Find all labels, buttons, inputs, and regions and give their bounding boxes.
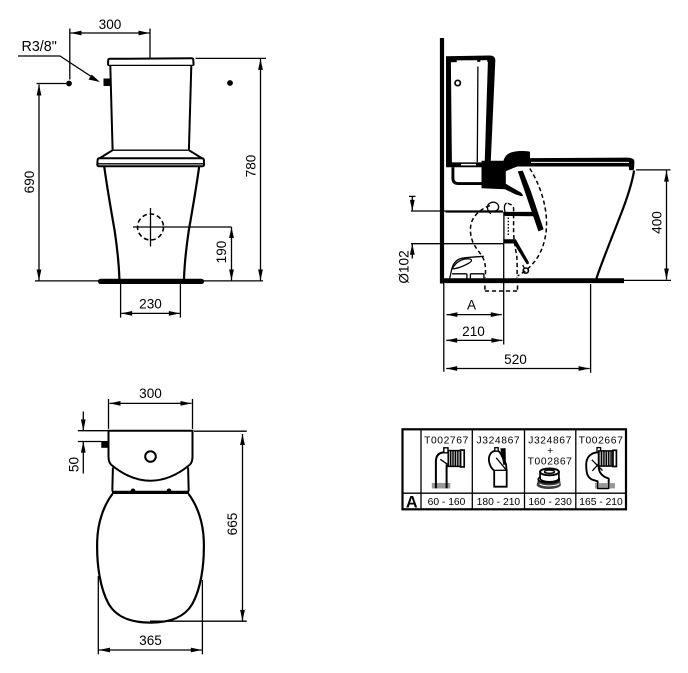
svg-text:400: 400 [650, 211, 665, 234]
svg-text:520: 520 [504, 352, 527, 367]
svg-text:R3/8": R3/8" [22, 39, 57, 55]
svg-text:60 - 160: 60 - 160 [428, 497, 466, 508]
svg-text:A: A [406, 493, 418, 511]
svg-text:A: A [467, 298, 477, 313]
svg-text:+: + [547, 446, 553, 457]
svg-text:165 - 210: 165 - 210 [579, 497, 623, 508]
svg-text:190: 190 [214, 240, 229, 263]
svg-text:210: 210 [462, 324, 485, 339]
svg-text:300: 300 [139, 386, 162, 401]
svg-text:J324867: J324867 [528, 436, 572, 447]
svg-text:780: 780 [244, 154, 259, 177]
svg-text:230: 230 [139, 297, 162, 312]
svg-text:160 - 230: 160 - 230 [528, 497, 572, 508]
svg-text:Ø102: Ø102 [397, 250, 412, 283]
svg-text:T002867: T002867 [528, 456, 573, 467]
svg-text:665: 665 [225, 513, 240, 536]
svg-text:365: 365 [139, 633, 162, 648]
svg-text:T002667: T002667 [579, 436, 624, 447]
svg-text:50: 50 [67, 457, 82, 473]
svg-text:180 - 210: 180 - 210 [477, 497, 521, 508]
svg-text:T002767: T002767 [424, 436, 469, 447]
svg-text:690: 690 [22, 170, 37, 193]
svg-text:300: 300 [99, 17, 122, 32]
svg-text:J324867: J324867 [477, 436, 521, 447]
